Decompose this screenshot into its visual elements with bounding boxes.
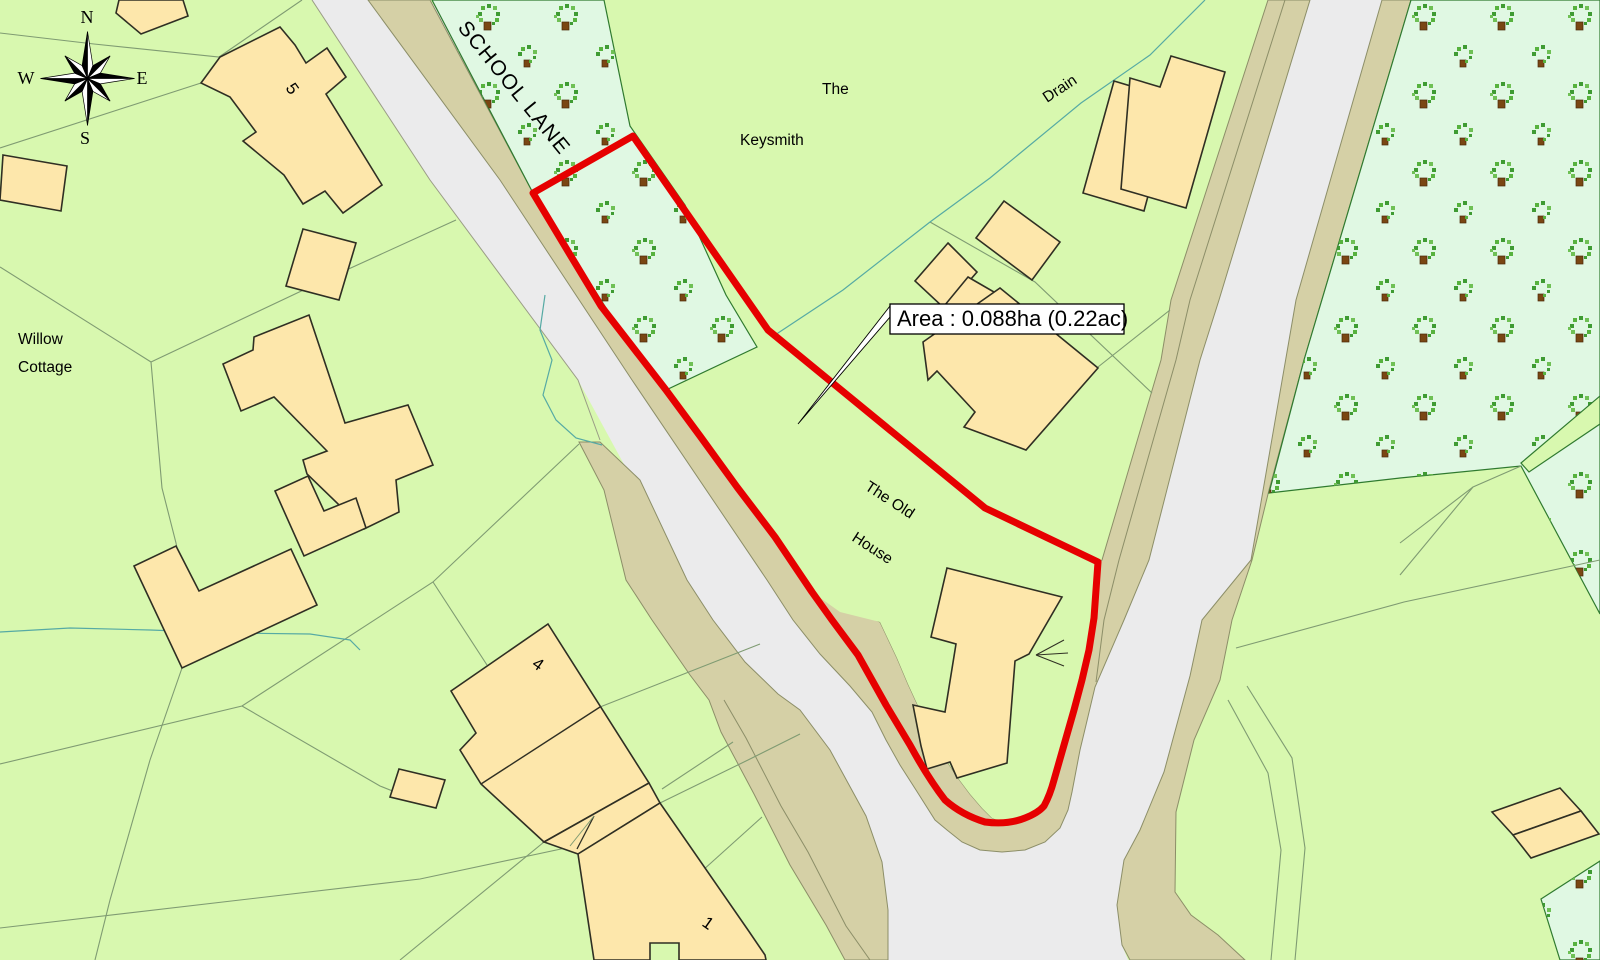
svg-text:Area : 0.088ha (0.22ac): Area : 0.088ha (0.22ac) [897, 306, 1128, 331]
svg-text:E: E [137, 68, 148, 88]
svg-text:Willow: Willow [18, 331, 64, 348]
svg-text:The: The [822, 81, 849, 98]
svg-text:W: W [18, 68, 35, 88]
svg-text:N: N [81, 7, 94, 27]
svg-text:Keysmith: Keysmith [740, 132, 804, 149]
svg-text:S: S [80, 128, 90, 148]
svg-text:Cottage: Cottage [18, 359, 72, 376]
